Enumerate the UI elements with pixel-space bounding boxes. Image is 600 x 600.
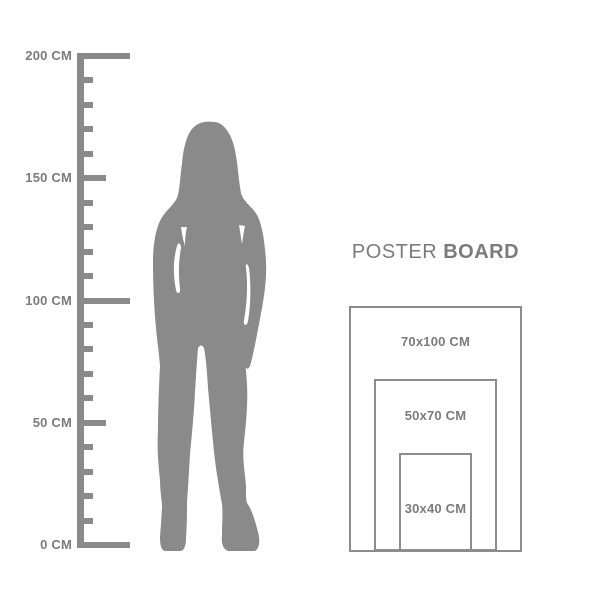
poster-board-title-bold: BOARD (443, 241, 519, 263)
woman-silhouette-body (153, 122, 266, 551)
poster-size-label-30x40: 30x40 CM (399, 501, 473, 517)
poster-board-title: POSTER BOARD (315, 242, 556, 262)
poster-board-title-regular: POSTER (352, 241, 437, 263)
poster-size-label-50x70: 50x70 CM (374, 408, 497, 424)
poster-size-label-70x100: 70x100 CM (349, 334, 521, 350)
size-comparison-diagram: 200 CM150 CM100 CM50 CM0 CM POSTER BOARD… (0, 0, 600, 600)
